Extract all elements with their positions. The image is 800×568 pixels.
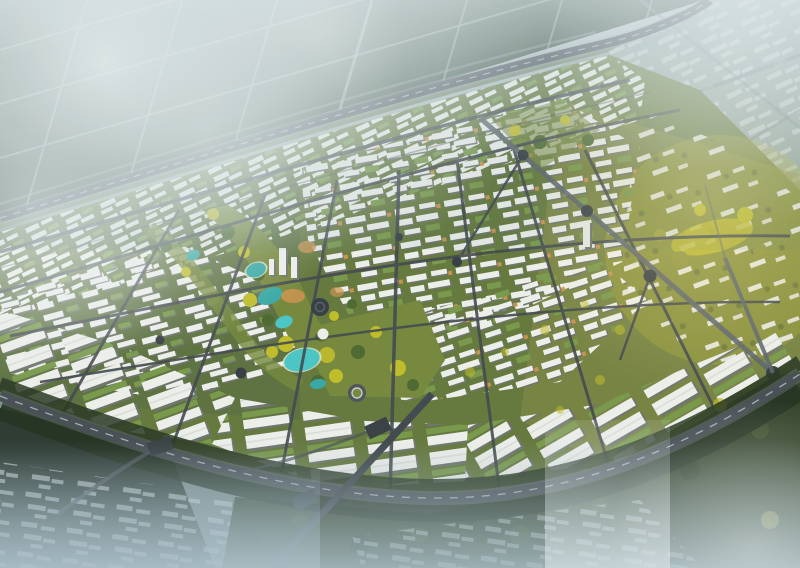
cool-tint	[0, 0, 800, 250]
roundabout-central	[311, 298, 329, 316]
plaza	[330, 287, 344, 297]
bottom-mist-left	[0, 450, 320, 568]
masterplan-canvas: Aerial dusk rendering of a crescent-shap…	[0, 0, 800, 568]
masterplan-rendering: Aerial dusk rendering of a crescent-shap…	[0, 0, 800, 568]
dome-pavilion	[318, 329, 329, 340]
